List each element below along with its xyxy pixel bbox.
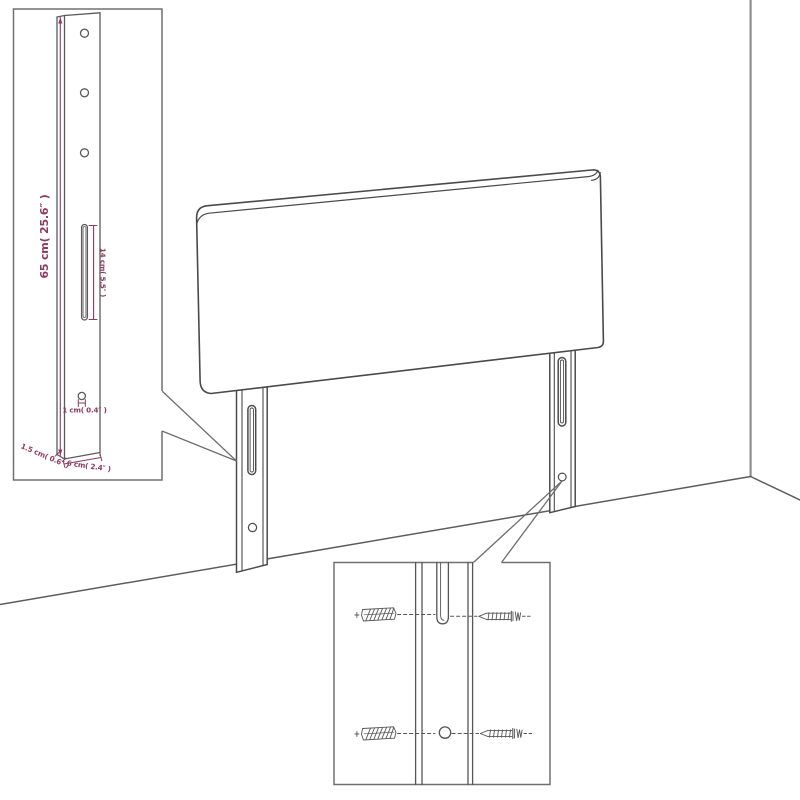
left-leg [237,381,268,573]
mounting-detail-inset [334,563,550,785]
diagram-page: 65 cm( 25.6″ ) 14 cm( 5.5″ ) 1 cm( 0.4″ … [0,0,800,800]
leg-height-label: 65 cm( 25.6″ ) [38,194,51,278]
right-leg [550,342,575,513]
slot-length-label: 14 cm( 5.5″ ) [99,248,108,297]
hole-diameter-label: 1 cm( 0.4″ ) [62,406,106,415]
headboard-dimension-diagram: 65 cm( 25.6″ ) 14 cm( 5.5″ ) 1 cm( 0.4″ … [0,0,800,800]
leg-detail-inset: 65 cm( 25.6″ ) 14 cm( 5.5″ ) 1 cm( 0.4″ … [14,9,163,480]
